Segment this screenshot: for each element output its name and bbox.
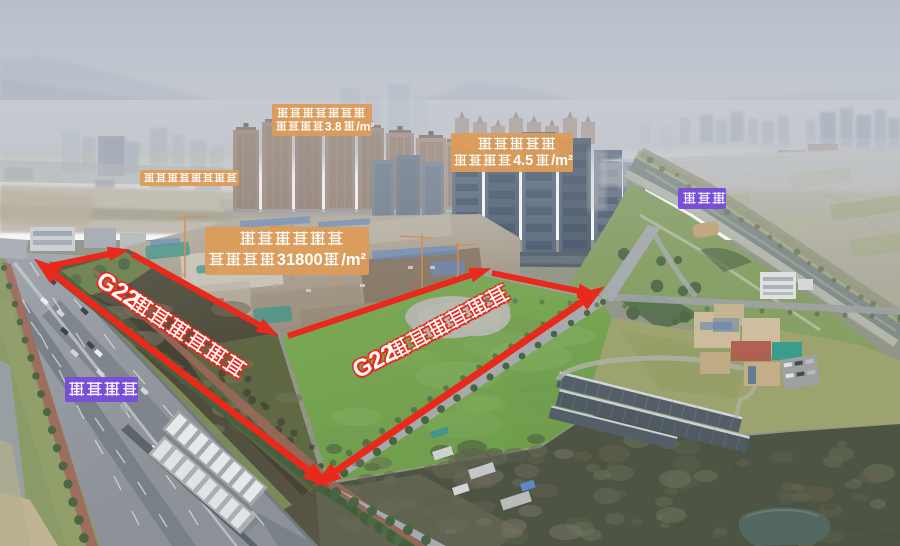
svg-text:31800: 31800	[277, 251, 323, 269]
svg-text:/m²: /m²	[551, 153, 573, 169]
svg-text:/m²: /m²	[341, 251, 366, 269]
svg-text:/m²: /m²	[356, 120, 374, 134]
svg-text:3.8: 3.8	[325, 120, 342, 134]
svg-text:4.5: 4.5	[513, 153, 533, 169]
